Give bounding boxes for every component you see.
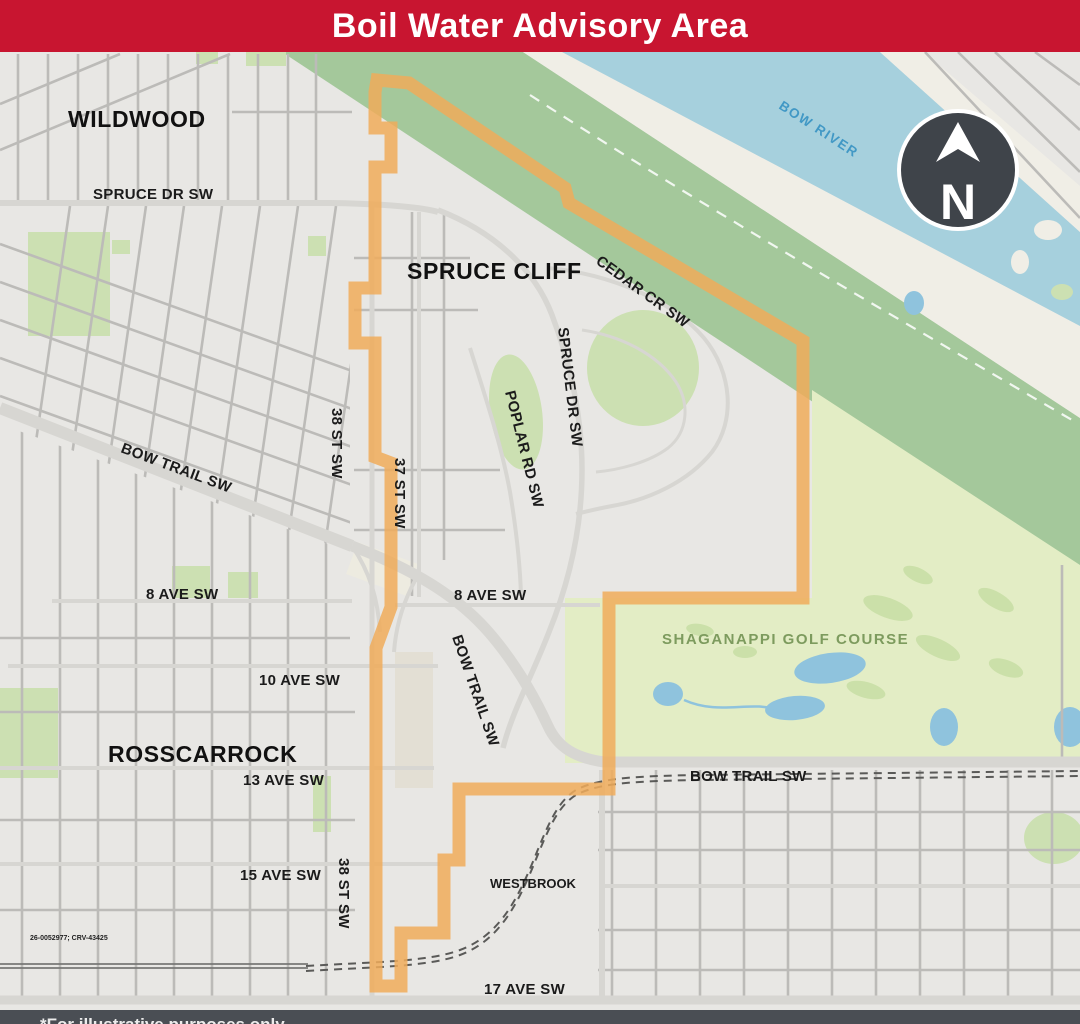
page-title: Boil Water Advisory Area [332, 7, 748, 46]
label-shaganappi-golf: SHAGANAPPI GOLF COURSE [662, 631, 909, 648]
river-island [1011, 250, 1029, 274]
label-8-ave-mid: 8 AVE SW [454, 587, 527, 604]
label-38-st-s: 38 ST SW [335, 858, 352, 929]
north-letter: N [940, 174, 976, 230]
label-wildwood: WILDWOOD [68, 106, 206, 132]
label-spruce-dr-w: SPRUCE DR SW [93, 186, 214, 203]
footer-disclaimer-bar: *For illustrative purposes only [0, 1010, 1080, 1024]
label-38-st-n: 38 ST SW [328, 408, 345, 479]
disclaimer-text: *For illustrative purposes only [40, 1015, 1080, 1024]
label-17-ave: 17 AVE SW [484, 981, 566, 998]
label-spruce-cliff: SPRUCE CLIFF [407, 258, 582, 284]
label-rosscarrock: ROSSCARROCK [108, 741, 297, 767]
label-bow-trail-e: BOW TRAIL SW [690, 768, 807, 785]
river-island [1051, 284, 1073, 300]
reference-code: 26-0052977; CRV-43425 [30, 935, 108, 942]
label-37-st: 37 ST SW [391, 458, 408, 529]
label-8-ave-w: 8 AVE SW [146, 586, 219, 603]
header-banner: Boil Water Advisory Area [0, 0, 1080, 52]
boil-water-advisory-map-page: Boil Water Advisory Area [0, 0, 1080, 1024]
label-15-ave: 15 AVE SW [240, 867, 322, 884]
advisory-map: WILDWOOD SPRUCE DR SW SPRUCE CLIFF CEDAR… [0, 0, 1080, 1024]
label-13-ave: 13 AVE SW [243, 772, 325, 789]
bank-pond [904, 291, 924, 315]
river-island [1034, 220, 1062, 240]
label-westbrook: WESTBROOK [490, 876, 577, 891]
north-arrow: N [897, 109, 1019, 231]
label-10-ave: 10 AVE SW [259, 672, 341, 689]
